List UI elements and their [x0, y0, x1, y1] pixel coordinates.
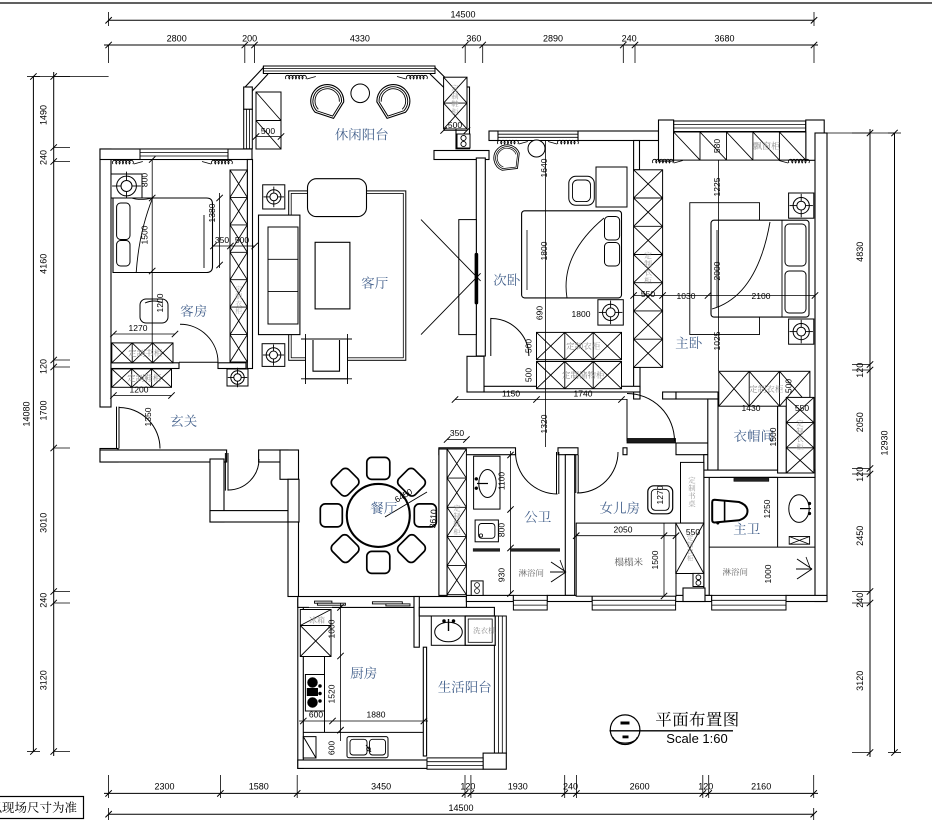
svg-text:600: 600 [327, 741, 337, 755]
svg-text:1800: 1800 [539, 241, 549, 260]
svg-text:1270: 1270 [655, 485, 665, 504]
svg-text:500: 500 [784, 379, 794, 393]
svg-text:1320: 1320 [539, 414, 549, 433]
svg-text:1520: 1520 [327, 684, 337, 703]
svg-text:550: 550 [686, 527, 700, 537]
svg-text:1200: 1200 [130, 385, 149, 395]
svg-text:200: 200 [242, 34, 257, 44]
svg-text:240: 240 [563, 782, 578, 792]
svg-text:360: 360 [466, 34, 481, 44]
svg-text:600: 600 [309, 710, 323, 720]
svg-text:2600: 2600 [630, 782, 650, 792]
svg-text:1930: 1930 [508, 782, 528, 792]
svg-text:350: 350 [215, 235, 229, 245]
svg-text:1580: 1580 [249, 782, 269, 792]
svg-text:120: 120 [460, 782, 475, 792]
svg-text:1880: 1880 [367, 710, 386, 720]
svg-text:580: 580 [712, 139, 722, 153]
svg-text:120: 120 [698, 782, 713, 792]
svg-text:500: 500 [448, 120, 462, 130]
svg-text:930: 930 [497, 568, 507, 582]
svg-text:3010: 3010 [39, 513, 49, 533]
svg-text:4160: 4160 [39, 254, 49, 274]
svg-text:Scale 1:60: Scale 1:60 [666, 731, 727, 746]
svg-text:1270: 1270 [129, 323, 148, 333]
svg-text:1100: 1100 [497, 472, 507, 491]
svg-text:1025: 1025 [712, 331, 722, 350]
svg-text:1200: 1200 [155, 293, 165, 312]
svg-text:2890: 2890 [543, 34, 563, 44]
svg-text:1640: 1640 [539, 158, 549, 177]
svg-text:2450: 2450 [855, 526, 865, 546]
svg-text:240: 240 [39, 150, 49, 165]
svg-text:240: 240 [622, 34, 637, 44]
svg-text:1500: 1500 [768, 427, 778, 446]
svg-text:240: 240 [39, 593, 49, 608]
svg-text:350: 350 [450, 428, 464, 438]
svg-text:1500: 1500 [650, 550, 660, 569]
svg-text:14080: 14080 [22, 401, 32, 426]
svg-text:2100: 2100 [752, 291, 771, 301]
svg-text:3120: 3120 [39, 670, 49, 690]
svg-text:120: 120 [39, 359, 49, 374]
svg-text:1500: 1500 [140, 225, 150, 244]
svg-text:1490: 1490 [39, 105, 49, 125]
svg-text:3610: 3610 [427, 509, 438, 529]
svg-text:4330: 4330 [350, 34, 370, 44]
svg-text:3680: 3680 [714, 34, 734, 44]
svg-text:2050: 2050 [614, 525, 633, 535]
svg-text:550: 550 [641, 289, 655, 299]
svg-text:550: 550 [795, 403, 809, 413]
svg-text:500: 500 [261, 126, 275, 136]
svg-text:1000: 1000 [763, 564, 773, 583]
svg-text:500: 500 [524, 368, 534, 382]
svg-text:3450: 3450 [371, 782, 391, 792]
svg-text:1250: 1250 [762, 499, 772, 518]
svg-text:800: 800 [497, 523, 507, 537]
svg-text:1380: 1380 [207, 203, 217, 222]
svg-text:1800: 1800 [572, 309, 591, 319]
svg-text:1000: 1000 [327, 619, 337, 638]
svg-text:3120: 3120 [855, 671, 865, 691]
svg-text:2000: 2000 [712, 261, 722, 280]
svg-text:800: 800 [140, 173, 150, 187]
svg-text:240: 240 [855, 593, 865, 608]
svg-text:14500: 14500 [448, 803, 473, 813]
svg-text:2160: 2160 [751, 782, 771, 792]
svg-text:120: 120 [855, 467, 865, 482]
svg-text:12930: 12930 [880, 430, 890, 455]
svg-text:1225: 1225 [712, 177, 722, 196]
svg-text:4830: 4830 [855, 242, 865, 262]
svg-text:1700: 1700 [39, 400, 49, 420]
svg-text:1030: 1030 [677, 291, 696, 301]
svg-text:1740: 1740 [574, 389, 593, 399]
svg-text:14500: 14500 [450, 10, 475, 20]
svg-text:120: 120 [855, 363, 865, 378]
svg-text:1150: 1150 [502, 389, 521, 399]
svg-text:2300: 2300 [154, 782, 174, 792]
svg-text:500: 500 [235, 235, 249, 245]
svg-text:1350: 1350 [143, 407, 153, 426]
svg-text:1430: 1430 [742, 403, 761, 413]
svg-text:500: 500 [524, 339, 534, 353]
svg-text:2800: 2800 [167, 34, 187, 44]
svg-text:690: 690 [535, 306, 545, 320]
svg-text:2050: 2050 [855, 412, 865, 432]
